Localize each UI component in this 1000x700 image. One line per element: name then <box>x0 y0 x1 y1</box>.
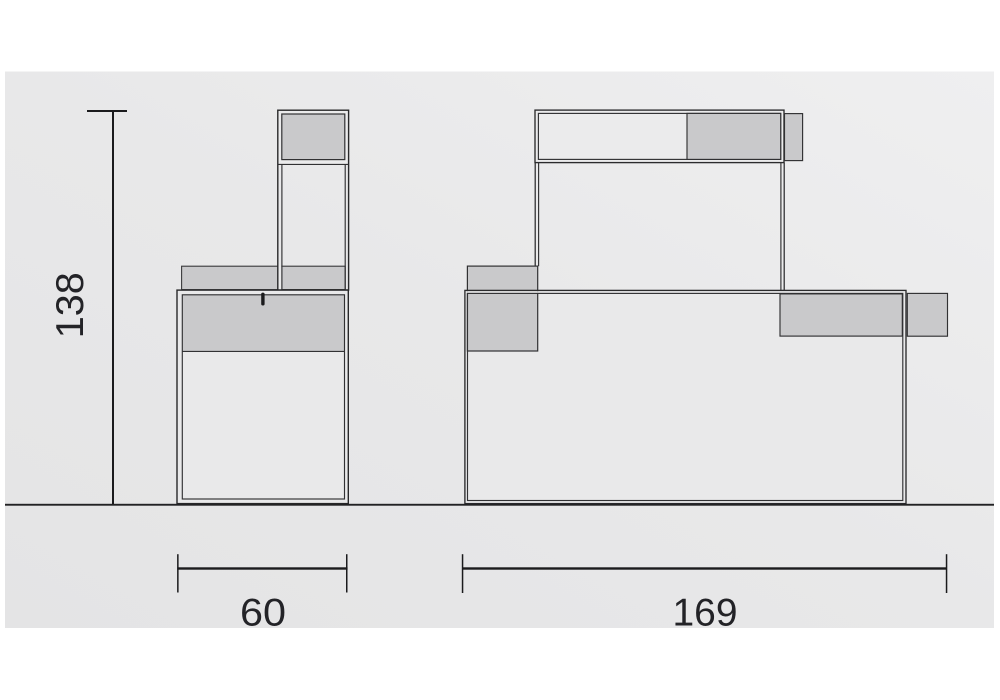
svg-text:169: 169 <box>673 591 738 634</box>
svg-text:138: 138 <box>49 272 92 338</box>
svg-text:60: 60 <box>240 591 286 634</box>
